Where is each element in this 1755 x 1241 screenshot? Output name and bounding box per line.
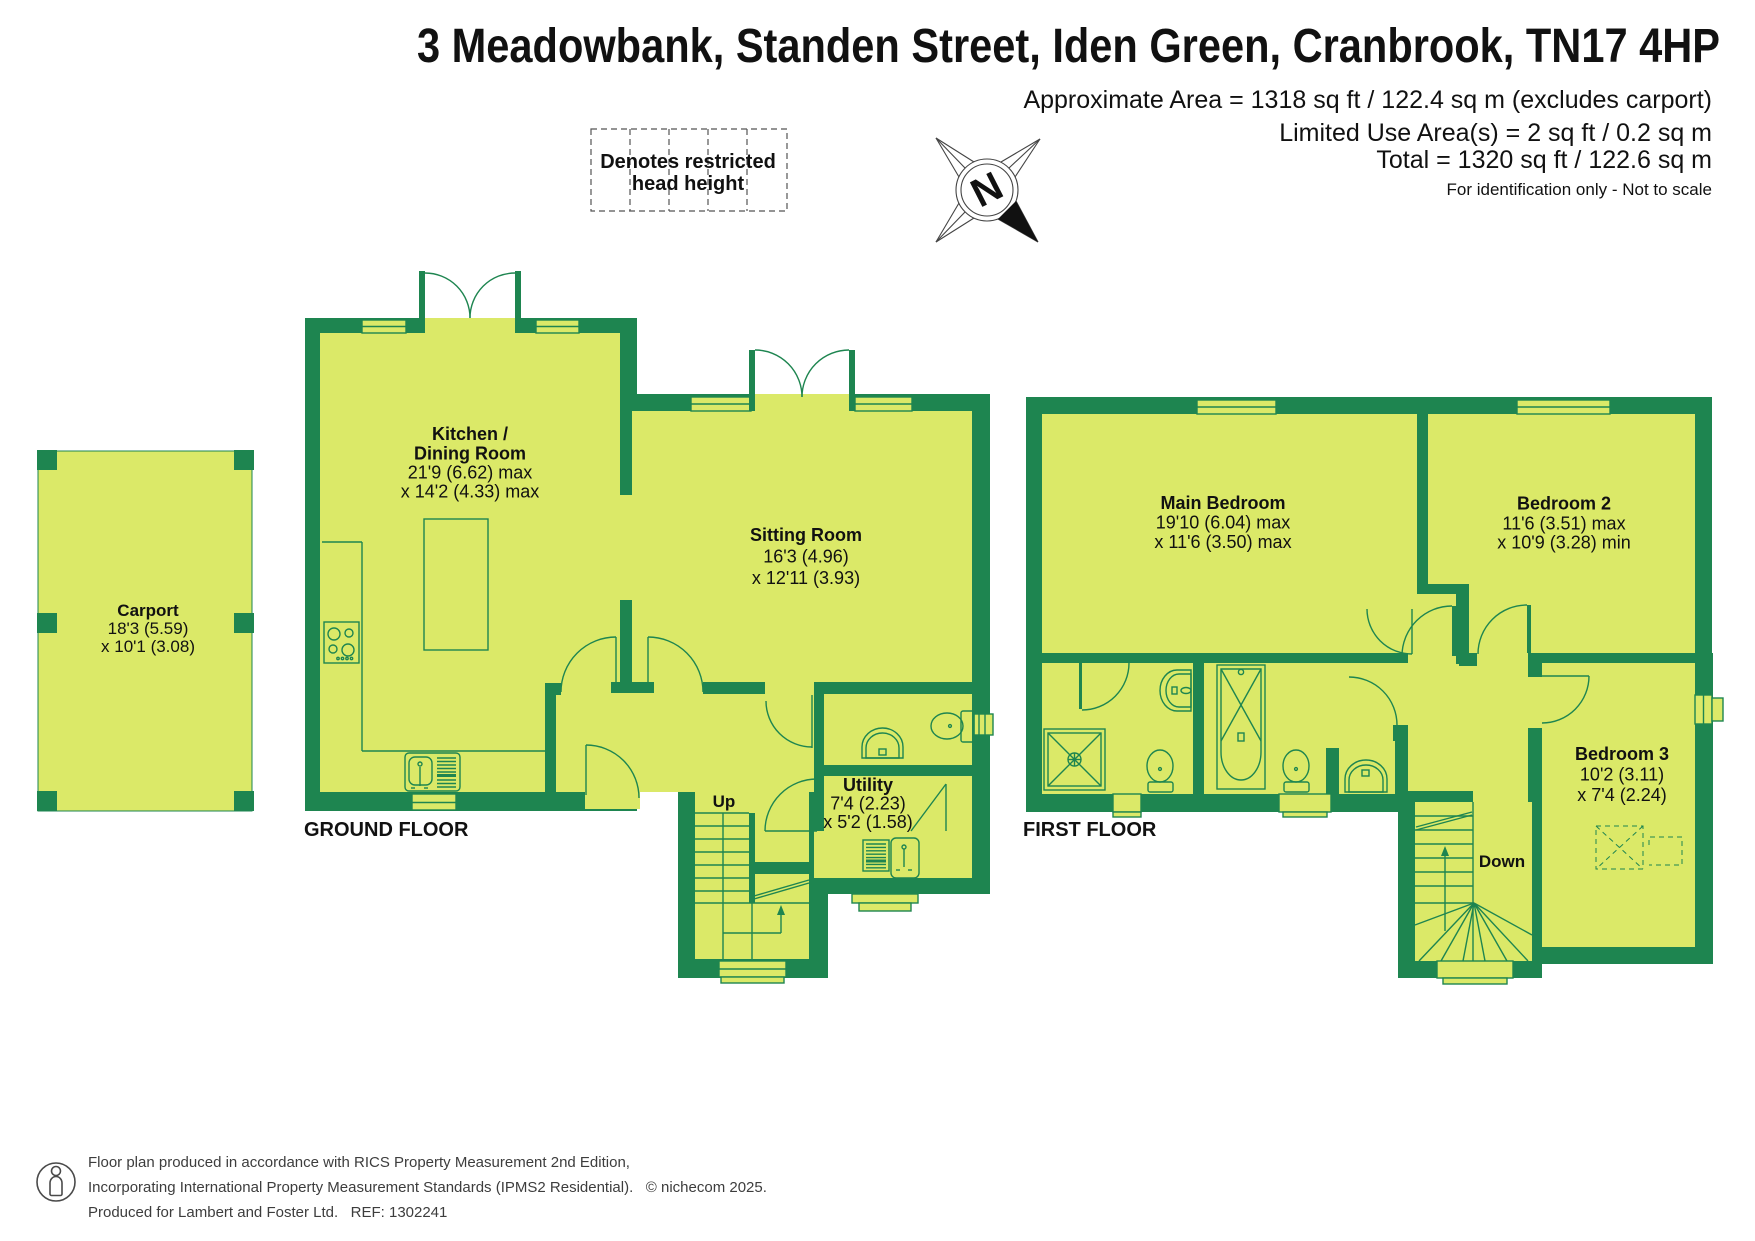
svg-text:Approximate Area = 1318 sq ft: Approximate Area = 1318 sq ft / 122.4 sq… bbox=[1023, 86, 1712, 114]
svg-text:x 12'11 (3.93): x 12'11 (3.93) bbox=[752, 568, 860, 588]
svg-text:Produced for Lambert and Foste: Produced for Lambert and Foster Ltd. REF… bbox=[88, 1204, 447, 1221]
svg-text:GROUND FLOOR: GROUND FLOOR bbox=[304, 819, 469, 841]
svg-text:FIRST FLOOR: FIRST FLOOR bbox=[1023, 819, 1157, 841]
svg-text:For identification only - Not: For identification only - Not to scale bbox=[1446, 180, 1712, 199]
svg-text:Carport: Carport bbox=[117, 601, 179, 620]
svg-text:Main Bedroom: Main Bedroom bbox=[1160, 493, 1285, 513]
svg-text:x 10'1 (3.08): x 10'1 (3.08) bbox=[101, 637, 195, 656]
svg-text:21'9 (6.62) max: 21'9 (6.62) max bbox=[408, 463, 533, 483]
svg-text:Utility: Utility bbox=[843, 775, 893, 795]
svg-text:Floor plan produced in accorda: Floor plan produced in accordance with R… bbox=[88, 1154, 630, 1171]
svg-text:3 Meadowbank, Standen Street,: 3 Meadowbank, Standen Street, Iden Green… bbox=[417, 20, 1720, 73]
svg-text:16'3 (4.96): 16'3 (4.96) bbox=[763, 547, 849, 567]
svg-text:Limited Use Area(s) = 2 sq ft: Limited Use Area(s) = 2 sq ft / 0.2 sq m bbox=[1279, 119, 1712, 147]
svg-text:Kitchen /: Kitchen / bbox=[432, 424, 508, 444]
svg-text:x 10'9 (3.28) min: x 10'9 (3.28) min bbox=[1497, 533, 1631, 553]
svg-text:Denotes restricted: Denotes restricted bbox=[600, 151, 776, 173]
svg-text:19'10 (6.04) max: 19'10 (6.04) max bbox=[1156, 513, 1291, 533]
svg-text:Dining Room: Dining Room bbox=[414, 444, 526, 464]
svg-text:Bedroom 3: Bedroom 3 bbox=[1575, 744, 1669, 764]
svg-text:x 7'4 (2.24): x 7'4 (2.24) bbox=[1577, 785, 1666, 805]
svg-text:18'3 (5.59): 18'3 (5.59) bbox=[108, 619, 189, 638]
svg-text:Total = 1320 sq ft / 122.6 sq: Total = 1320 sq ft / 122.6 sq m bbox=[1376, 146, 1712, 174]
svg-text:Incorporating International Pr: Incorporating International Property Mea… bbox=[88, 1179, 767, 1196]
svg-text:7'4 (2.23): 7'4 (2.23) bbox=[830, 794, 905, 814]
svg-text:head height: head height bbox=[632, 173, 745, 195]
svg-text:Down: Down bbox=[1479, 852, 1525, 871]
svg-text:Sitting Room: Sitting Room bbox=[750, 525, 862, 545]
svg-text:Bedroom 2: Bedroom 2 bbox=[1517, 494, 1611, 514]
svg-text:x 14'2 (4.33) max: x 14'2 (4.33) max bbox=[401, 482, 540, 502]
svg-text:10'2 (3.11): 10'2 (3.11) bbox=[1580, 765, 1664, 785]
svg-text:x 11'6 (3.50) max: x 11'6 (3.50) max bbox=[1154, 532, 1291, 552]
svg-text:11'6 (3.51) max: 11'6 (3.51) max bbox=[1502, 514, 1625, 534]
svg-text:Up: Up bbox=[713, 792, 736, 811]
svg-text:x 5'2 (1.58): x 5'2 (1.58) bbox=[823, 812, 912, 832]
